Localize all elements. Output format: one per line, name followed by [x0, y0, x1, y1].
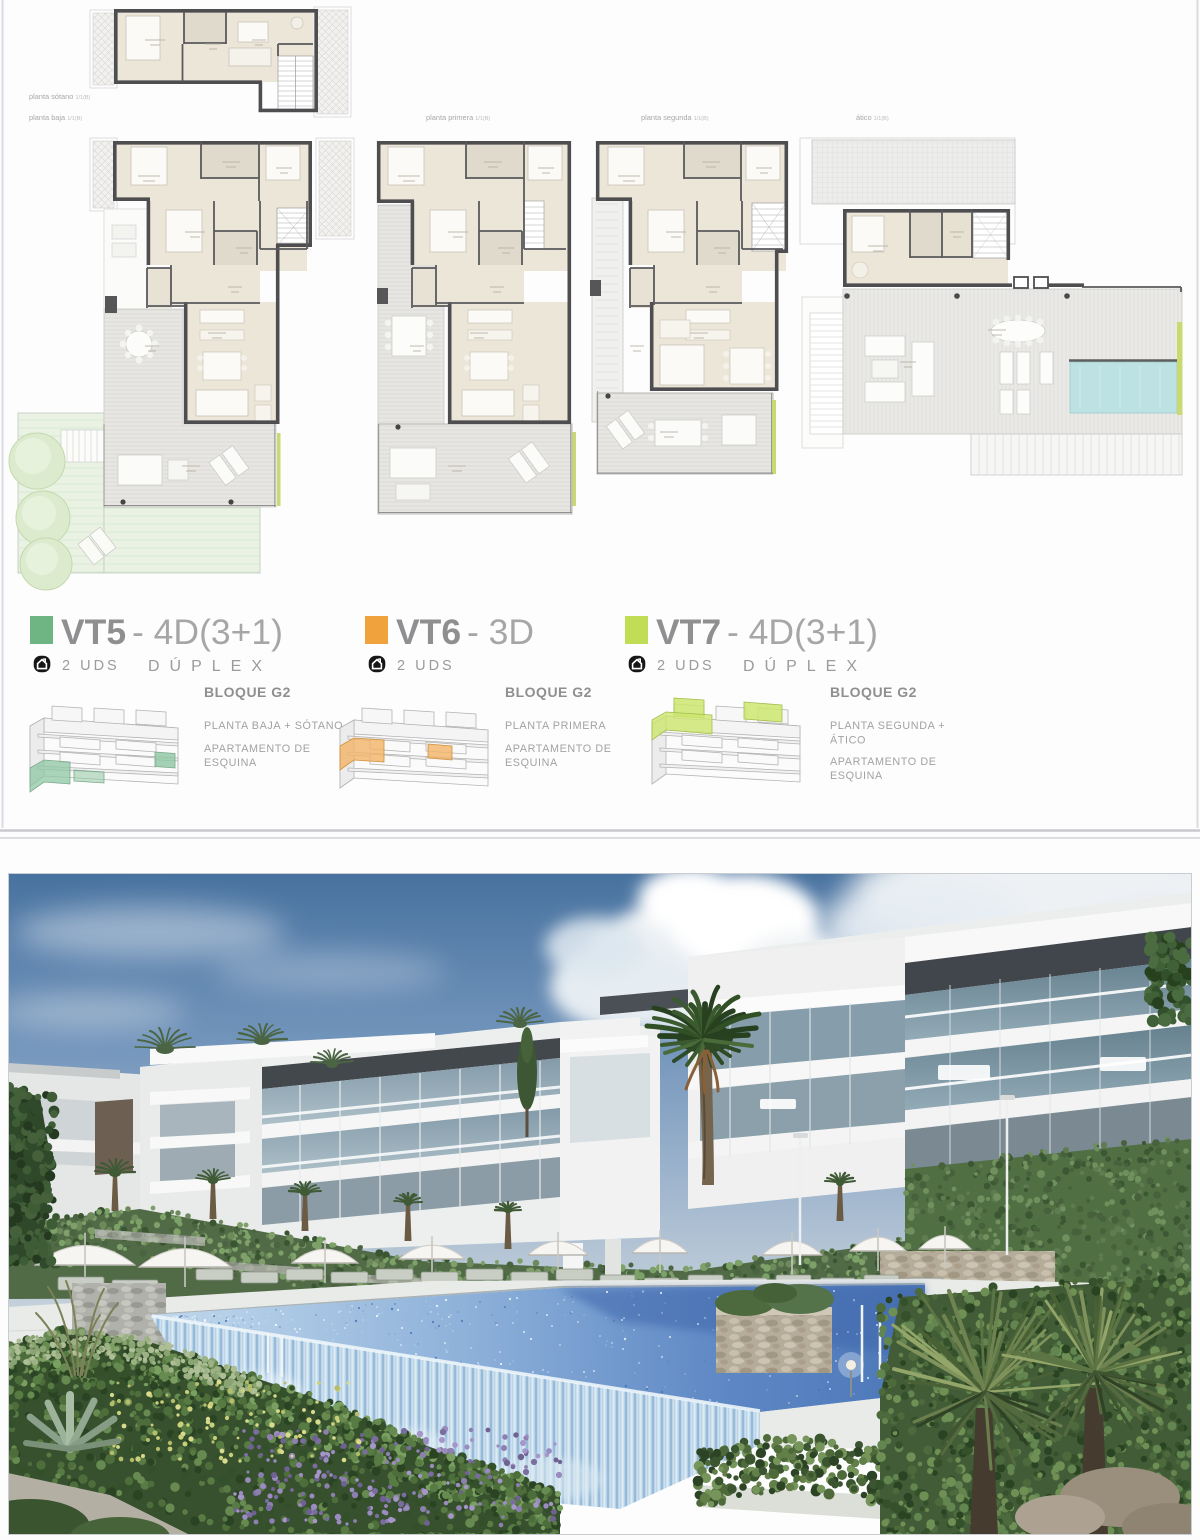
svg-text:PLANTA BAJA + SÓTANO: PLANTA BAJA + SÓTANO: [204, 719, 343, 732]
svg-text:- 4D(3+1): - 4D(3+1): [727, 612, 878, 652]
svg-text:ESQUINA: ESQUINA: [204, 757, 257, 769]
svg-text:2 UDS: 2 UDS: [62, 658, 120, 674]
svg-text:BLOQUE G2: BLOQUE G2: [830, 684, 917, 700]
svg-text:ESQUINA: ESQUINA: [830, 770, 883, 782]
svg-text:2 UDS: 2 UDS: [657, 658, 715, 674]
svg-text:VT5: VT5: [61, 612, 126, 652]
svg-text:2 UDS: 2 UDS: [397, 658, 455, 674]
svg-text:PLANTA PRIMERA: PLANTA PRIMERA: [505, 720, 606, 732]
svg-text:ESQUINA: ESQUINA: [505, 757, 558, 769]
svg-text:VT6: VT6: [396, 612, 461, 652]
svg-text:DÚPLEX: DÚPLEX: [148, 656, 272, 675]
svg-text:DÚPLEX: DÚPLEX: [743, 656, 867, 675]
svg-text:VT7: VT7: [656, 612, 721, 652]
svg-text:APARTAMENTO DE: APARTAMENTO DE: [830, 756, 937, 768]
svg-text:BLOQUE G2: BLOQUE G2: [204, 684, 291, 700]
svg-text:- 3D: - 3D: [467, 612, 534, 652]
svg-text:- 4D(3+1): - 4D(3+1): [132, 612, 283, 652]
svg-text:APARTAMENTO DE: APARTAMENTO DE: [204, 743, 311, 755]
svg-text:ÁTICO: ÁTICO: [830, 734, 866, 747]
svg-text:BLOQUE G2: BLOQUE G2: [505, 684, 592, 700]
svg-text:APARTAMENTO DE: APARTAMENTO DE: [505, 743, 612, 755]
svg-text:PLANTA SEGUNDA +: PLANTA SEGUNDA +: [830, 720, 945, 732]
